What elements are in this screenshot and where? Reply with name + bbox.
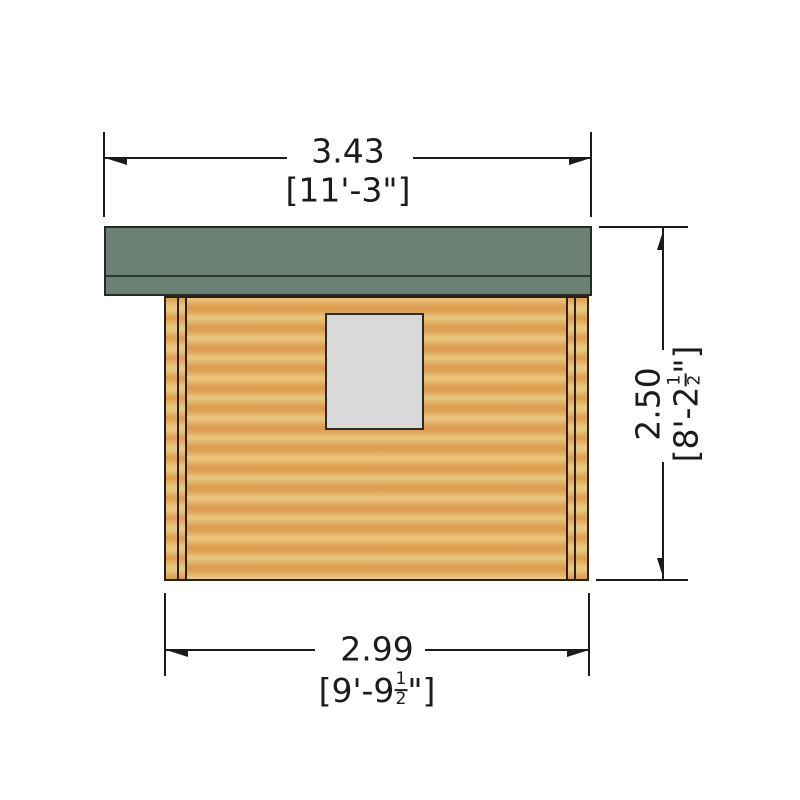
extension-line (596, 579, 688, 581)
wall-corner-joint-line (566, 298, 568, 579)
dimension-text-rotated: 2.50 [8'-212"] (632, 346, 705, 463)
arrowhead-left-icon (105, 158, 127, 165)
extension-line (588, 593, 590, 676)
shed-window (325, 313, 424, 430)
arrowhead-up-icon (657, 228, 664, 250)
extension-line (599, 226, 688, 228)
wall-corner-logs-left (166, 298, 186, 579)
dimension-metric-value: 2.50 (632, 346, 667, 463)
elevation-drawing: 3.43 [11'-3"] 2.50 [8'-212"] (0, 0, 800, 800)
arrowhead-right-icon (569, 158, 591, 165)
extension-line (103, 132, 105, 217)
wall-corner-joint-line (574, 298, 576, 579)
dimension-imperial-value: [9'-912"] (319, 671, 436, 709)
inch-fraction: 12 (394, 671, 407, 709)
wall-corner-logs-right (567, 298, 587, 579)
roof-fascia-divider (106, 275, 590, 277)
dimension-metric-value: 3.43 (311, 135, 384, 170)
arrowhead-down-icon (657, 558, 664, 580)
arrowhead-left-icon (166, 650, 188, 657)
dimension-line (105, 157, 287, 159)
dimension-metric-value: 2.99 (340, 633, 413, 668)
dimension-imperial-value: [8'-212"] (667, 346, 705, 463)
dimension-line (166, 649, 315, 651)
extension-line (164, 593, 166, 676)
shed-roof (104, 226, 592, 296)
dimension-line (413, 157, 591, 159)
inch-fraction: 12 (667, 374, 705, 387)
wall-corner-joint-line (185, 298, 187, 579)
wall-corner-joint-line (177, 298, 179, 579)
dimension-imperial-value: [11'-3"] (286, 174, 411, 209)
arrowhead-right-icon (567, 650, 589, 657)
dimension-line (425, 649, 589, 651)
extension-line (590, 132, 592, 217)
